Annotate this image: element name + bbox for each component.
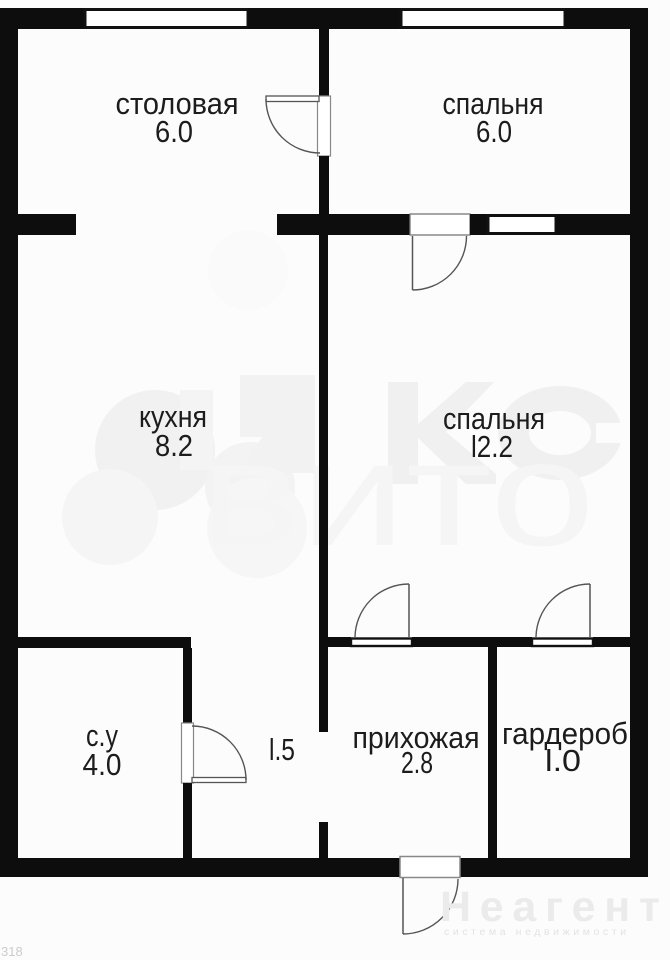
svg-text:4.0: 4.0: [83, 747, 122, 782]
svg-text:318: 318: [1, 944, 23, 959]
svg-text:l2.2: l2.2: [471, 429, 513, 464]
svg-text:l.5: l.5: [269, 732, 295, 767]
svg-text:l.0: l.0: [545, 743, 581, 778]
svg-text:система недвижимости: система недвижимости: [444, 926, 630, 938]
svg-text:6.0: 6.0: [155, 114, 193, 149]
svg-text:8.2: 8.2: [155, 428, 193, 463]
svg-text:2.8: 2.8: [401, 745, 433, 780]
svg-text:6.0: 6.0: [476, 114, 512, 149]
